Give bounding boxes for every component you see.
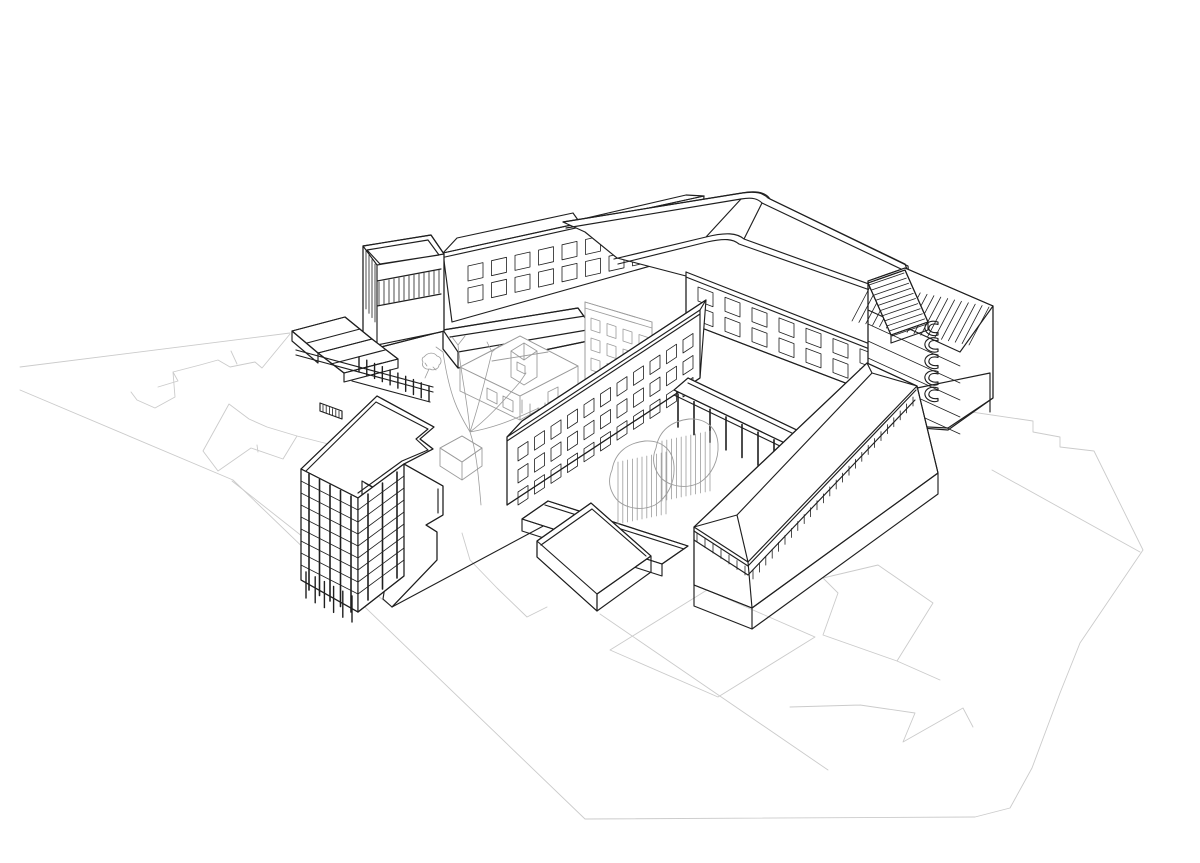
axonometric-drawing-page (0, 0, 1200, 863)
gen-streaks-t1 (618, 452, 666, 524)
street-block (301, 396, 443, 622)
context-footprints-south (600, 565, 973, 770)
plinth-tree-glyph (422, 353, 441, 378)
axonometric-drawing (0, 0, 1200, 863)
glazed-tower (292, 235, 444, 419)
